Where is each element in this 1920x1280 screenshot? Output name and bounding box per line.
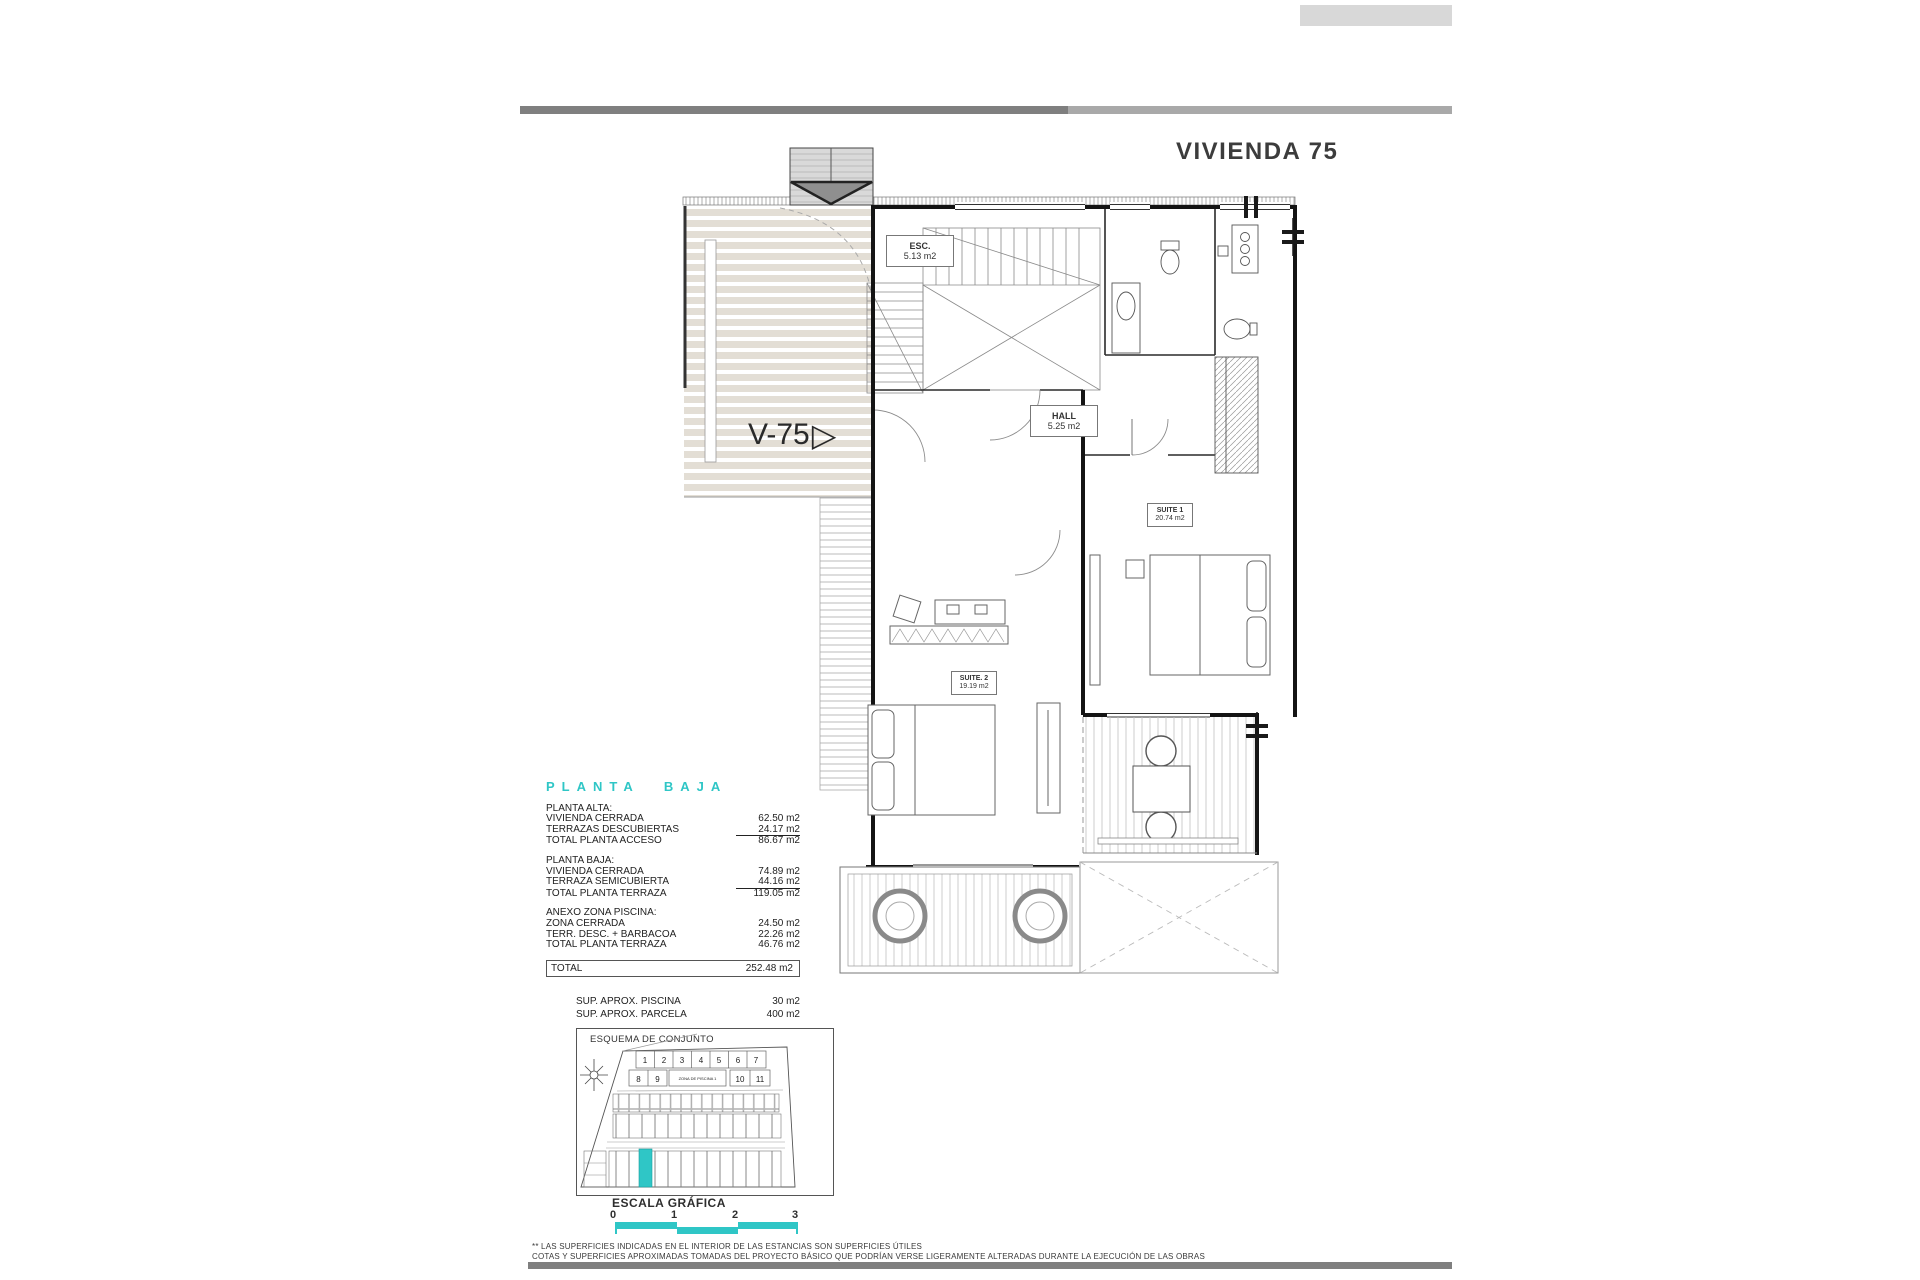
- door-swings: [873, 390, 1168, 575]
- scale-bar-end-tick: [796, 1222, 798, 1234]
- row-label: TOTAL PLANTA TERRAZA: [546, 940, 736, 951]
- scale-tick: 3: [792, 1209, 798, 1221]
- pool-zone-label: ZONA DE PISCINA 1: [679, 1076, 718, 1081]
- scale-tick: 2: [732, 1209, 738, 1221]
- lot-number: 8: [636, 1075, 641, 1084]
- suite1-furniture: [1090, 555, 1270, 685]
- table-row: ZONA CERRADA24.50 m2: [546, 919, 800, 930]
- lot-number: 2: [662, 1056, 667, 1065]
- surface-table-heading: PLANTA BAJA: [546, 782, 800, 793]
- total-row: TOTAL 252.48 m2: [546, 960, 800, 978]
- row-label: TOTAL PLANTA ACCESO: [546, 836, 736, 847]
- surface-table: PLANTA BAJA PLANTA ALTA: VIVIENDA CERRAD…: [546, 782, 800, 1021]
- scale-bar-end-tick: [615, 1222, 617, 1234]
- lot-number: 3: [680, 1056, 685, 1065]
- deck-open: [1080, 862, 1278, 973]
- terrace-v75: [684, 206, 873, 497]
- total-value: 252.48 m2: [746, 964, 793, 975]
- room-label-suite1: SUITE 1 20.74 m2: [1147, 503, 1193, 527]
- row-value: 24.50 m2: [736, 919, 800, 930]
- side-walkway: [820, 497, 873, 790]
- terrace-dining: [1083, 717, 1257, 853]
- plan-sheet-page: { "title": "VIVIENDA 75", "colors": { "a…: [0, 0, 1920, 1280]
- row-label: SUP. APROX. PISCINA: [546, 995, 746, 1008]
- terrace-loungers: [840, 867, 1080, 973]
- section-anexo-piscina: ANEXO ZONA PISCINA: ZONA CERRADA24.50 m2…: [546, 908, 800, 950]
- scale-tick: 0: [610, 1209, 616, 1221]
- room-area: 5.13 m2: [887, 251, 953, 261]
- suite2-furniture: [868, 595, 1060, 815]
- unit-bands: [584, 1090, 785, 1187]
- room-label-suite2: SUITE. 2 19.19 m2: [951, 671, 997, 695]
- lot-number: 1: [643, 1056, 648, 1065]
- unit-marker-v75: V-75 ▷: [748, 418, 836, 452]
- row-value: 44.16 m2: [736, 877, 800, 889]
- entrance-canopy: [790, 148, 873, 205]
- header-corner-block: [1300, 5, 1452, 26]
- row-value: 30 m2: [746, 995, 800, 1008]
- table-row: TERRAZA SEMICUBIERTA44.16 m2: [546, 877, 800, 889]
- section-planta-baja: PLANTA BAJA: VIVIENDA CERRADA74.89 m2 TE…: [546, 856, 800, 899]
- row-label: TERRAZA SEMICUBIERTA: [546, 877, 736, 889]
- total-label: TOTAL: [551, 964, 582, 975]
- row-label: ZONA CERRADA: [546, 919, 736, 930]
- room-area: 5.25 m2: [1031, 421, 1097, 431]
- row-value: 400 m2: [746, 1008, 800, 1021]
- scale-bar-baseline: [615, 1227, 798, 1229]
- table-row: TOTAL PLANTA TERRAZA119.05 m2: [546, 889, 800, 900]
- lot-number: 5: [717, 1056, 722, 1065]
- table-row: TOTAL PLANTA TERRAZA46.76 m2: [546, 940, 800, 951]
- section-planta-alta: PLANTA ALTA: VIVIENDA CERRADA62.50 m2 TE…: [546, 804, 800, 847]
- room-name: ESC.: [887, 241, 953, 251]
- unit-marker-text: V-75: [748, 418, 810, 452]
- table-row: TOTAL PLANTA ACCESO86.67 m2: [546, 836, 800, 847]
- extra-row-parcela: SUP. APROX. PARCELA 400 m2: [546, 1008, 800, 1021]
- room-name: SUITE. 2: [952, 675, 996, 683]
- row-label: TOTAL PLANTA TERRAZA: [546, 889, 736, 900]
- site-plan-box: ESQUEMA DE CONJUNTO 1 2 3: [576, 1028, 834, 1196]
- row-value: 46.76 m2: [736, 940, 800, 951]
- right-triangle-icon: ▷: [812, 420, 837, 450]
- highlighted-unit-v75: [639, 1149, 652, 1187]
- footer-rule: [528, 1262, 1452, 1269]
- room-name: SUITE 1: [1148, 507, 1192, 515]
- footnotes: ** LAS SUPERFICIES INDICADAS EN EL INTER…: [532, 1242, 1392, 1262]
- row-value: 86.67 m2: [736, 836, 800, 847]
- extra-row-piscina: SUP. APROX. PISCINA 30 m2: [546, 995, 800, 1008]
- row-value: 119.05 m2: [736, 889, 800, 900]
- room-area: 19.19 m2: [952, 683, 996, 691]
- room-label-esc: ESC. 5.13 m2: [886, 235, 954, 267]
- lot-number: 11: [756, 1075, 765, 1084]
- footnote-line1: ** LAS SUPERFICIES INDICADAS EN EL INTER…: [532, 1242, 1392, 1252]
- room-area: 20.74 m2: [1148, 515, 1192, 523]
- footnote-line2: COTAS Y SUPERFICIES APROXIMADAS TOMADAS …: [532, 1252, 1392, 1262]
- lot-number: 10: [736, 1075, 745, 1084]
- section-title: PLANTA BAJA:: [546, 856, 800, 867]
- compass-icon: [580, 1059, 608, 1091]
- site-plan-drawing: 1 2 3 4 5 6 7 8 9 ZONA DE PISCINA 1 10 1…: [577, 1029, 833, 1195]
- lot-number: 6: [736, 1056, 741, 1065]
- room-name: HALL: [1031, 411, 1097, 421]
- bathroom-fixtures: [1112, 225, 1258, 473]
- lot-number: 4: [699, 1056, 704, 1065]
- scale-tick: 1: [671, 1209, 677, 1221]
- room-label-hall: HALL 5.25 m2: [1030, 405, 1098, 437]
- scale-title: ESCALA GRÁFICA: [612, 1196, 726, 1210]
- lot-number: 9: [655, 1075, 660, 1084]
- row-label: SUP. APROX. PARCELA: [546, 1008, 746, 1021]
- lot-number: 7: [754, 1056, 759, 1065]
